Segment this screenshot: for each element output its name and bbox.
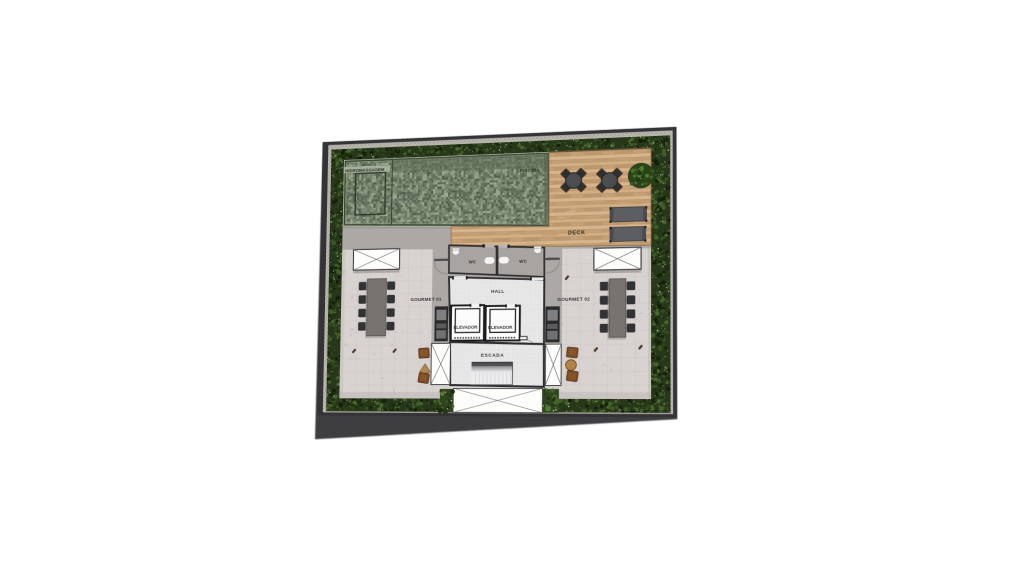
svg-text:DECK: DECK: [568, 230, 586, 237]
svg-text:PISCINA: PISCINA: [520, 167, 540, 173]
svg-text:HALL: HALL: [491, 288, 505, 294]
svg-text:ESCADA: ESCADA: [481, 352, 505, 358]
svg-text:WC: WC: [519, 259, 527, 265]
svg-text:GOURMET 02: GOURMET 02: [557, 296, 590, 302]
svg-text:GOURMET 01: GOURMET 01: [410, 296, 442, 302]
svg-text:WC: WC: [469, 259, 477, 265]
svg-text:ELEVADOR: ELEVADOR: [488, 325, 512, 331]
svg-text:ELEVADOR: ELEVADOR: [453, 324, 477, 330]
